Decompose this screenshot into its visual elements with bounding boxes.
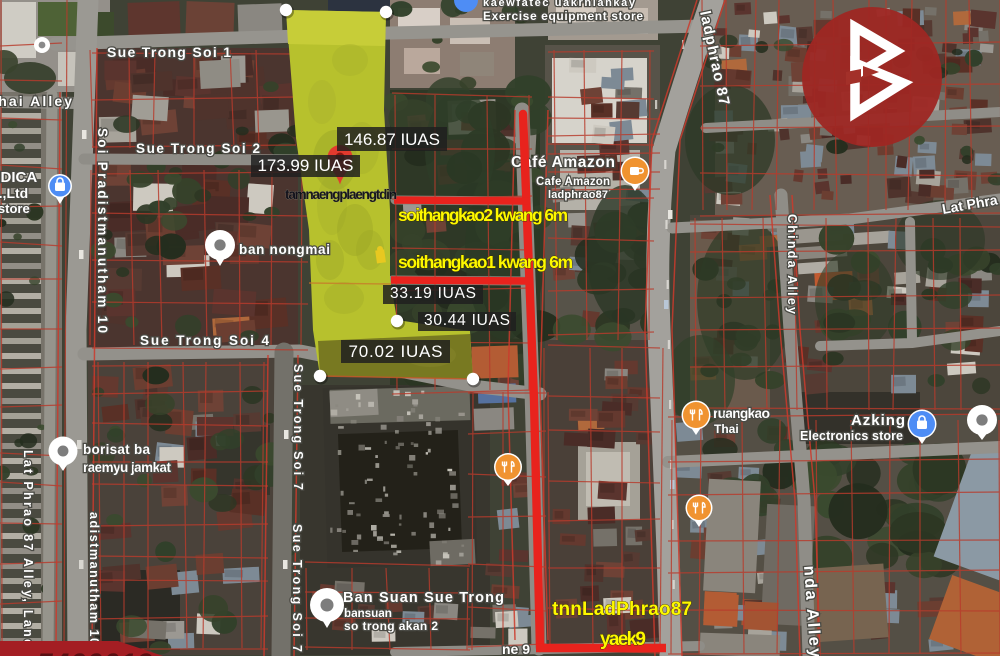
- svg-text:Electronics store: Electronics store: [800, 429, 903, 443]
- svg-text:173.99 IUAS: 173.99 IUAS: [258, 156, 354, 175]
- svg-text:70.02 IUAS: 70.02 IUAS: [349, 342, 443, 361]
- svg-text:so trong akan 2: so trong akan 2: [344, 619, 438, 633]
- svg-text:ladphrao87: ladphrao87: [548, 189, 608, 201]
- svg-text:ruangkao: ruangkao: [713, 405, 770, 421]
- svg-text:Azking: Azking: [851, 412, 905, 429]
- svg-text:tnnLadPhrao87: tnnLadPhrao87: [552, 599, 692, 620]
- svg-text:borisat ba: borisat ba: [83, 442, 150, 457]
- svg-text:Chinda Alley: Chinda Alley: [785, 214, 799, 314]
- svg-text:tamnaengplaengtdin: tamnaengplaengtdin: [285, 187, 397, 202]
- svg-text:Chai Alley: Chai Alley: [0, 93, 72, 109]
- svg-text:Ban Suan Sue Trong: Ban Suan Sue Trong: [343, 590, 504, 606]
- svg-text:soithangkao1 kwang 6m: soithangkao1 kwang 6m: [398, 252, 573, 272]
- svg-text:Sue Trong Soi 2: Sue Trong Soi 2: [136, 141, 260, 156]
- svg-text:adistmanutham 10: adistmanutham 10: [87, 512, 101, 645]
- svg-text:30.44 IUAS: 30.44 IUAS: [424, 312, 510, 329]
- svg-text:ban nongmai: ban nongmai: [239, 242, 330, 257]
- svg-text:kaewfatec uakrnlankay: kaewfatec uakrnlankay: [483, 0, 636, 9]
- svg-text:raemyu jamkat: raemyu jamkat: [83, 460, 172, 475]
- svg-text:Sue Trong Soi 1: Sue Trong Soi 1: [107, 44, 231, 60]
- svg-text:soithangkao2 kwang 6m: soithangkao2 kwang 6m: [398, 205, 568, 225]
- svg-text:Soi Pradistmanutham 10: Soi Pradistmanutham 10: [95, 128, 110, 333]
- svg-text:5400019: 5400019: [36, 648, 153, 656]
- svg-text:bansuan: bansuan: [344, 606, 392, 620]
- svg-text:Cafe Amazon: Cafe Amazon: [536, 176, 610, 188]
- svg-text:MEDICA: MEDICA: [0, 169, 37, 186]
- svg-text:Exercise equipment store: Exercise equipment store: [483, 9, 643, 23]
- svg-text:33.19 IUAS: 33.19 IUAS: [390, 285, 476, 302]
- svg-text:Thai: Thai: [714, 422, 739, 436]
- svg-text:yaek9: yaek9: [600, 629, 646, 650]
- svg-text:Co.,Ltd: Co.,Ltd: [0, 185, 28, 201]
- svg-text:ne 9: ne 9: [502, 641, 530, 656]
- svg-text:ry store: ry store: [0, 201, 30, 216]
- svg-text:146.87 IUAS: 146.87 IUAS: [344, 130, 440, 149]
